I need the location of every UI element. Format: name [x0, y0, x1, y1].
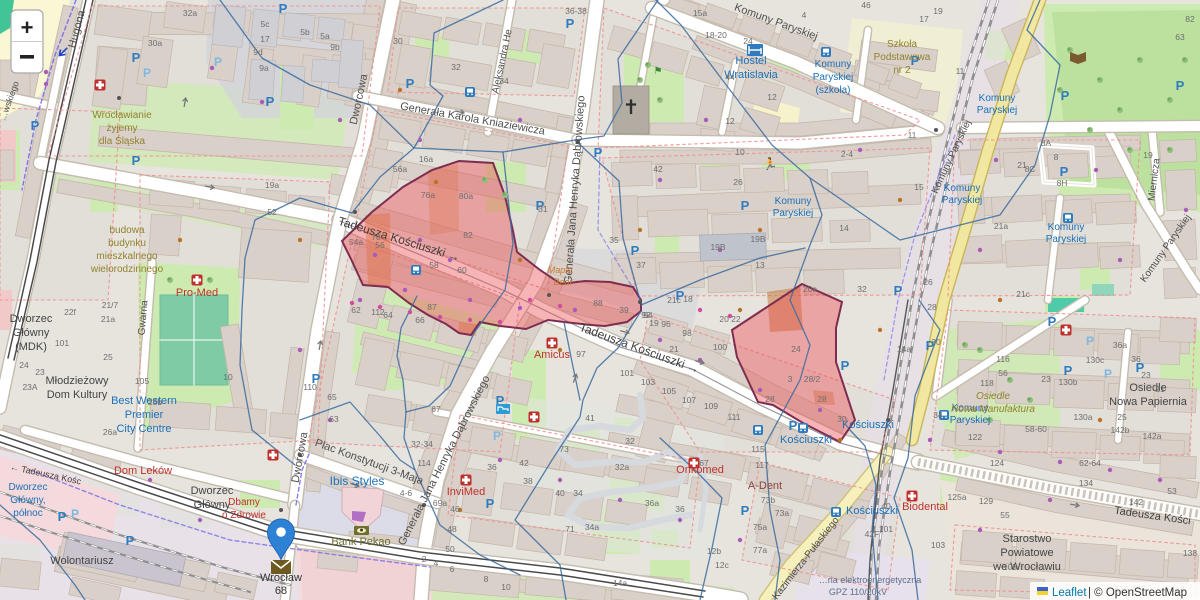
svg-text:10: 10	[735, 147, 745, 157]
svg-text:Szkoła: Szkoła	[887, 39, 917, 50]
svg-text:125a: 125a	[948, 492, 967, 502]
svg-text:69a: 69a	[433, 498, 447, 508]
svg-text:77a: 77a	[753, 545, 767, 555]
svg-text:34a: 34a	[585, 522, 599, 532]
svg-text:P: P	[1104, 367, 1112, 381]
svg-text:36: 36	[487, 462, 497, 472]
svg-text:4-6: 4-6	[400, 488, 413, 498]
svg-text:11: 11	[956, 66, 965, 76]
svg-text:68: 68	[275, 585, 287, 597]
svg-text:Paryskiej: Paryskiej	[773, 208, 814, 219]
svg-text:Komuny: Komuny	[775, 196, 812, 207]
svg-text:46: 46	[861, 0, 871, 10]
svg-text:10: 10	[501, 582, 511, 592]
svg-text:Komuny: Komuny	[979, 93, 1016, 104]
svg-text:Podstawowa: Podstawowa	[874, 52, 931, 63]
svg-text:23: 23	[1041, 374, 1051, 384]
svg-text:Dworzec: Dworzec	[10, 313, 53, 325]
svg-text:Ibis Styles: Ibis Styles	[330, 474, 385, 488]
svg-text:73a: 73a	[775, 508, 789, 518]
svg-text:80a: 80a	[459, 191, 473, 201]
svg-text:58: 58	[429, 260, 439, 270]
svg-text:P: P	[143, 66, 151, 80]
svg-text:134: 134	[1079, 478, 1093, 488]
svg-text:21c: 21c	[1016, 289, 1030, 299]
svg-text:122: 122	[968, 432, 982, 442]
svg-text:101: 101	[879, 524, 893, 534]
svg-text:28/2: 28/2	[804, 374, 821, 384]
svg-text:112: 112	[371, 307, 385, 317]
svg-text:9d: 9d	[253, 47, 263, 57]
svg-text:52: 52	[267, 207, 277, 217]
svg-text:(MDK): (MDK)	[15, 341, 47, 353]
svg-text:142b: 142b	[1111, 425, 1130, 435]
svg-text:2-4: 2-4	[841, 149, 854, 159]
svg-text:19: 19	[933, 6, 943, 16]
svg-text:17: 17	[919, 14, 929, 24]
svg-text:101: 101	[55, 338, 69, 348]
svg-text:28: 28	[817, 394, 827, 404]
svg-text:20 22: 20 22	[719, 314, 741, 324]
svg-text:114: 114	[417, 458, 431, 468]
svg-text:Komuny: Komuny	[1048, 222, 1085, 233]
svg-text:Nowa Manufaktura: Nowa Manufaktura	[951, 404, 1035, 415]
svg-text:+: +	[21, 15, 34, 40]
svg-text:Paryskiej: Paryskiej	[813, 72, 854, 83]
svg-text:12c: 12c	[715, 560, 729, 570]
svg-text:o Zdrowie: o Zdrowie	[222, 510, 266, 521]
svg-text:18-20: 18-20	[705, 30, 727, 40]
svg-text:30a: 30a	[148, 38, 162, 48]
svg-text:2: 2	[422, 554, 427, 564]
svg-text:✝: ✝	[623, 97, 640, 119]
svg-text:25: 25	[1117, 412, 1127, 422]
svg-text:Best Western: Best Western	[111, 395, 177, 407]
svg-text:14a: 14a	[613, 578, 627, 588]
svg-text:26: 26	[923, 277, 933, 287]
svg-text:24: 24	[791, 344, 801, 354]
svg-text:87: 87	[427, 302, 437, 312]
svg-text:94: 94	[643, 310, 653, 320]
svg-text:Powiatowe: Powiatowe	[1000, 547, 1053, 559]
svg-text:P: P	[894, 283, 903, 298]
svg-text:30: 30	[931, 337, 941, 347]
svg-text:budynku: budynku	[108, 238, 146, 249]
svg-text:35: 35	[609, 235, 619, 245]
svg-text:Komuny: Komuny	[944, 183, 981, 194]
svg-text:32: 32	[451, 62, 461, 72]
svg-text:21: 21	[1155, 384, 1165, 394]
svg-text:P: P	[126, 533, 135, 548]
svg-text:14a: 14a	[897, 344, 911, 354]
svg-text:117: 117	[755, 460, 769, 470]
svg-text:15a: 15a	[693, 8, 707, 18]
svg-text:8A: 8A	[1041, 138, 1052, 148]
svg-text:Pro-Med: Pro-Med	[176, 287, 218, 299]
svg-text:19B: 19B	[710, 242, 725, 252]
svg-text:23A: 23A	[22, 382, 37, 392]
svg-text:8H: 8H	[1057, 178, 1068, 188]
svg-text:96: 96	[661, 319, 671, 329]
svg-text:12b: 12b	[707, 546, 721, 556]
svg-text:36: 36	[1131, 354, 1141, 364]
svg-text:97: 97	[576, 349, 586, 359]
svg-text:40: 40	[555, 488, 565, 498]
svg-text:58-60: 58-60	[1025, 424, 1047, 434]
svg-text:P: P	[741, 503, 750, 518]
svg-text:15: 15	[914, 182, 924, 192]
svg-text:12: 12	[767, 92, 777, 102]
svg-text:26a: 26a	[103, 427, 117, 437]
svg-text:P: P	[841, 358, 850, 373]
svg-text:109: 109	[704, 401, 718, 411]
svg-text:53: 53	[1167, 486, 1177, 496]
svg-text:88: 88	[593, 298, 603, 308]
svg-text:Dbamy: Dbamy	[228, 497, 260, 508]
svg-text:75a: 75a	[753, 522, 767, 532]
svg-text:39: 39	[619, 305, 629, 315]
svg-text:10: 10	[223, 372, 233, 382]
svg-text:3: 3	[788, 374, 793, 384]
svg-text:60: 60	[457, 265, 467, 275]
svg-text:21a: 21a	[994, 221, 1008, 231]
svg-text:36a: 36a	[1113, 340, 1127, 350]
svg-text:Dom Kultury: Dom Kultury	[47, 389, 108, 401]
svg-text:26: 26	[733, 177, 743, 187]
svg-text:🏃: 🏃	[763, 157, 778, 171]
svg-text:78: 78	[371, 232, 381, 242]
svg-text:55: 55	[1000, 510, 1010, 520]
svg-text:103: 103	[641, 377, 655, 387]
svg-text:Młodzieżowy: Młodzieżowy	[46, 375, 109, 387]
svg-text:4: 4	[802, 10, 807, 20]
svg-text:Kościuszki: Kościuszki	[780, 434, 832, 446]
svg-text:24: 24	[19, 360, 29, 370]
svg-text:8: 8	[1054, 152, 1059, 162]
svg-text:34: 34	[499, 76, 509, 86]
svg-text:42: 42	[519, 458, 529, 468]
svg-text:Osiedle: Osiedle	[976, 391, 1010, 402]
svg-text:dla Śląska: dla Śląska	[99, 134, 146, 147]
svg-text:9a: 9a	[259, 63, 269, 73]
svg-text:P: P	[493, 429, 501, 443]
svg-text:25: 25	[103, 352, 113, 362]
svg-text:30: 30	[393, 36, 403, 46]
svg-text:73b: 73b	[761, 495, 775, 505]
svg-text:11: 11	[908, 130, 917, 140]
svg-text:GPZ 110/20kV: GPZ 110/20kV	[829, 587, 887, 597]
svg-text:Nowa Papiernia: Nowa Papiernia	[1109, 396, 1188, 408]
svg-text:118: 118	[980, 378, 994, 388]
svg-text:105: 105	[1003, 562, 1017, 572]
svg-text:37: 37	[636, 260, 646, 270]
svg-text:Paryskiej: Paryskiej	[942, 195, 983, 206]
svg-text:…ria elektroenergetyczna: …ria elektroenergetyczna	[819, 575, 922, 585]
svg-text:9b: 9b	[330, 42, 340, 52]
svg-text:73: 73	[559, 444, 569, 454]
svg-text:36-38: 36-38	[565, 6, 587, 16]
svg-text:5b: 5b	[300, 27, 310, 37]
svg-text:36: 36	[675, 504, 685, 514]
svg-text:Leaflet: Leaflet	[1052, 587, 1087, 599]
svg-text:101: 101	[620, 368, 634, 378]
svg-text:mieszkalnego: mieszkalnego	[96, 251, 158, 262]
svg-text:Bank Pekao: Bank Pekao	[331, 536, 390, 548]
svg-text:56: 56	[998, 368, 1008, 378]
svg-text:107: 107	[682, 395, 696, 405]
svg-text:65: 65	[327, 392, 337, 402]
svg-text:42F: 42F	[865, 529, 880, 539]
svg-text:P: P	[1176, 78, 1185, 93]
svg-text:14: 14	[839, 223, 849, 233]
svg-text:30: 30	[837, 414, 847, 424]
svg-text:A-Dent: A-Dent	[748, 480, 782, 492]
svg-text:40: 40	[881, 501, 891, 511]
svg-text:P: P	[71, 507, 79, 521]
svg-text:82: 82	[463, 230, 473, 240]
svg-text:19B: 19B	[750, 234, 765, 244]
svg-text:Dworzec: Dworzec	[9, 482, 48, 493]
svg-text:44: 44	[725, 72, 735, 82]
svg-text:67: 67	[431, 404, 441, 414]
svg-text:4: 4	[434, 558, 439, 568]
svg-text:P: P	[1086, 334, 1094, 348]
svg-text:116: 116	[996, 354, 1010, 364]
svg-text:130b: 130b	[1059, 377, 1078, 387]
svg-text:103: 103	[931, 540, 945, 550]
svg-text:63: 63	[329, 414, 339, 424]
svg-text:żyjemy: żyjemy	[106, 123, 137, 134]
svg-text:19a: 19a	[265, 180, 279, 190]
svg-text:Paryskiej: Paryskiej	[950, 415, 991, 426]
svg-text:71: 71	[565, 524, 575, 534]
svg-text:21c: 21c	[667, 295, 681, 305]
svg-text:98: 98	[682, 328, 692, 338]
svg-text:32a: 32a	[183, 8, 197, 18]
svg-text:20a: 20a	[803, 284, 817, 294]
svg-text:P: P	[594, 145, 603, 160]
svg-text:Wolontariusz: Wolontariusz	[50, 555, 113, 567]
svg-text:P: P	[486, 496, 495, 511]
svg-text:32: 32	[625, 436, 635, 446]
svg-text:InviMed: InviMed	[447, 486, 486, 498]
svg-text:Dworzec: Dworzec	[191, 485, 234, 497]
svg-text:Maple: Maple	[548, 265, 573, 275]
svg-text:Wrocław: Wrocław	[260, 572, 302, 584]
svg-text:City Centre: City Centre	[116, 423, 171, 435]
svg-text:16a: 16a	[419, 154, 433, 164]
svg-text:Paryskiej: Paryskiej	[1046, 234, 1087, 245]
svg-text:138: 138	[1183, 548, 1197, 558]
svg-text:P: P	[31, 118, 40, 133]
svg-text:P: P	[631, 243, 640, 258]
svg-text:Hostel: Hostel	[735, 55, 766, 67]
svg-text:110: 110	[303, 382, 317, 392]
svg-text:P: P	[132, 153, 141, 168]
svg-text:56a: 56a	[393, 164, 407, 174]
svg-text:12: 12	[725, 116, 735, 126]
svg-text:22f: 22f	[64, 307, 76, 317]
svg-text:5c: 5c	[261, 19, 271, 29]
svg-text:P: P	[566, 16, 575, 31]
svg-text:⚑: ⚑	[654, 66, 663, 77]
svg-text:34: 34	[573, 488, 583, 498]
svg-text:34: 34	[933, 410, 943, 420]
svg-text:31: 31	[538, 204, 548, 214]
svg-text:54a: 54a	[349, 237, 363, 247]
svg-text:100: 100	[713, 342, 727, 352]
svg-text:P: P	[214, 55, 222, 69]
svg-text:23: 23	[35, 367, 45, 377]
svg-text:82: 82	[1185, 14, 1195, 24]
svg-text:124: 124	[990, 458, 1004, 468]
svg-text:P: P	[789, 418, 798, 433]
svg-text:17: 17	[260, 34, 270, 44]
svg-text:P: P	[58, 509, 67, 524]
svg-text:142a: 142a	[1143, 431, 1162, 441]
svg-text:P: P	[1064, 363, 1073, 378]
svg-text:32: 32	[857, 284, 867, 294]
svg-text:32-34: 32-34	[411, 439, 433, 449]
svg-text:Komuny: Komuny	[815, 59, 852, 70]
svg-text:62: 62	[351, 305, 361, 315]
svg-text:21a: 21a	[101, 314, 115, 324]
svg-text:115: 115	[751, 444, 765, 454]
svg-text:25b: 25b	[148, 397, 162, 407]
svg-text:36a: 36a	[645, 498, 659, 508]
svg-text:P: P	[1048, 314, 1057, 329]
svg-text:130a: 130a	[1074, 412, 1093, 422]
svg-text:Bear: Bear	[553, 277, 573, 287]
svg-text:P: P	[406, 76, 415, 91]
svg-text:23: 23	[1141, 370, 1151, 380]
svg-text:P: P	[279, 1, 288, 16]
svg-text:| © OpenStreetMap: | © OpenStreetMap	[1088, 587, 1187, 599]
svg-text:50: 50	[445, 544, 455, 554]
svg-text:5a: 5a	[320, 31, 330, 41]
svg-text:P: P	[132, 50, 141, 65]
svg-text:42: 42	[653, 164, 663, 174]
svg-text:18: 18	[683, 294, 693, 304]
svg-text:21: 21	[669, 344, 679, 354]
svg-text:67: 67	[699, 458, 709, 468]
svg-text:28: 28	[927, 302, 937, 312]
svg-text:8: 8	[484, 574, 489, 584]
svg-text:wielorodzinnego: wielorodzinnego	[90, 264, 164, 275]
svg-text:111: 111	[728, 412, 741, 422]
svg-text:Paryskiej: Paryskiej	[977, 105, 1018, 116]
svg-text:Starostwo: Starostwo	[1003, 533, 1052, 545]
svg-text:48: 48	[447, 524, 457, 534]
svg-text:P: P	[1060, 164, 1069, 179]
svg-text:Wrocławianie: Wrocławianie	[92, 110, 152, 121]
svg-text:46: 46	[450, 504, 460, 514]
svg-text:142: 142	[1129, 497, 1143, 507]
svg-text:Premier: Premier	[125, 409, 164, 421]
svg-text:budowa: budowa	[109, 225, 144, 236]
svg-text:Dom Leków: Dom Leków	[114, 465, 172, 477]
svg-text:P: P	[266, 94, 275, 109]
svg-text:Biodental: Biodental	[902, 501, 948, 513]
svg-text:19: 19	[1143, 150, 1153, 160]
svg-text:21/7: 21/7	[102, 300, 119, 310]
svg-text:105: 105	[135, 376, 149, 386]
svg-text:130c: 130c	[1086, 355, 1105, 365]
svg-text:(szkoła): (szkoła)	[815, 85, 850, 96]
svg-text:P: P	[741, 198, 750, 213]
svg-text:Główny: Główny	[13, 327, 50, 339]
svg-text:63: 63	[1175, 32, 1185, 42]
svg-text:Amicus: Amicus	[534, 349, 571, 361]
svg-text:Kościuszki: Kościuszki	[842, 419, 894, 431]
svg-text:66: 66	[415, 315, 425, 325]
svg-text:Główny,: Główny,	[10, 495, 45, 506]
svg-text:21: 21	[1017, 160, 1027, 170]
svg-text:105: 105	[662, 386, 676, 396]
svg-text:nr 2: nr 2	[893, 65, 911, 76]
svg-text:41: 41	[585, 413, 595, 423]
svg-text:38: 38	[523, 476, 533, 486]
svg-text:62-64: 62-64	[1079, 458, 1101, 468]
svg-text:6: 6	[450, 564, 455, 574]
svg-text:32a: 32a	[615, 462, 629, 472]
svg-text:północ: północ	[13, 508, 42, 519]
svg-text:13: 13	[755, 260, 765, 270]
svg-text:129: 129	[979, 496, 993, 506]
svg-text:28: 28	[765, 394, 775, 404]
svg-text:76a: 76a	[421, 190, 435, 200]
